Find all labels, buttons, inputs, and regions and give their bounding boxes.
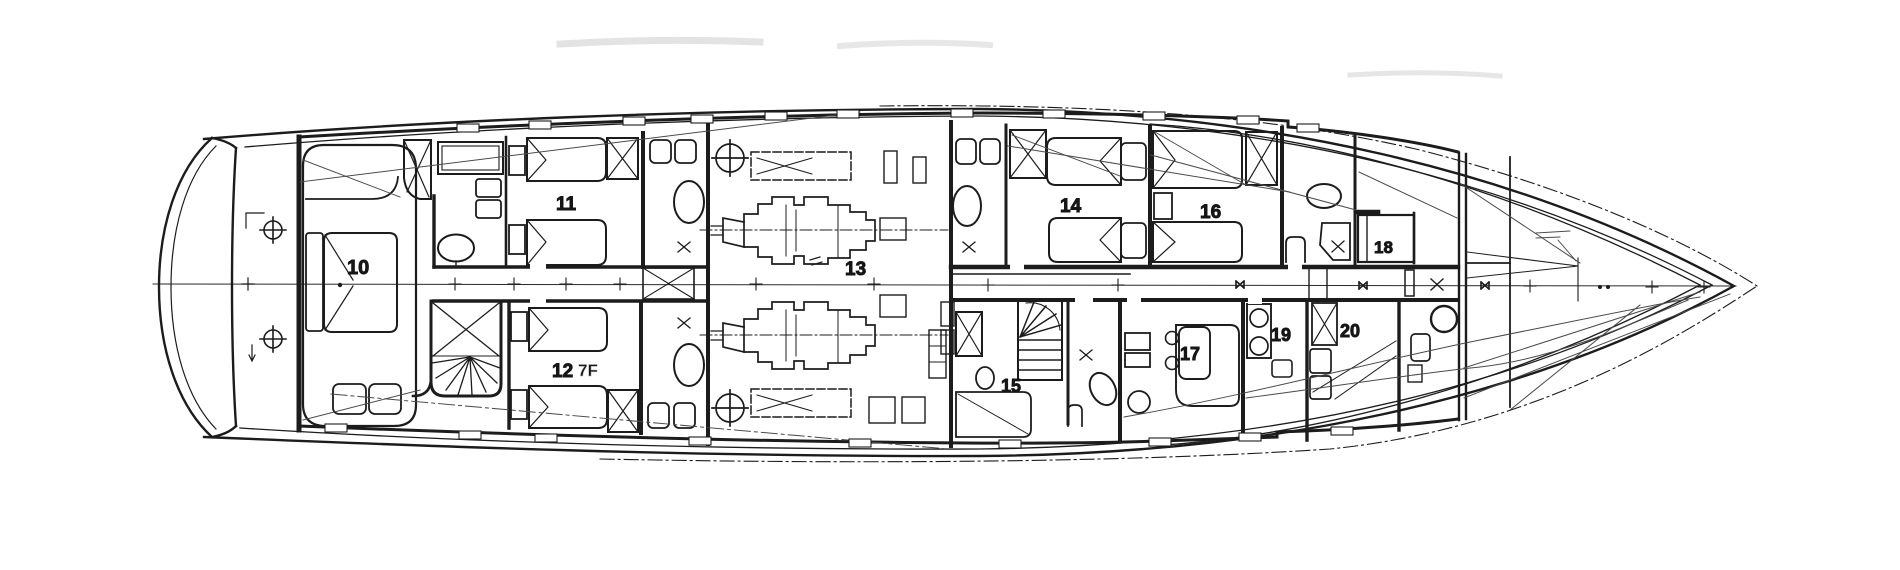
svg-text:19: 19 [1271, 325, 1291, 345]
svg-text:11: 11 [556, 194, 577, 215]
svg-text:15: 15 [1001, 376, 1021, 396]
svg-text:17: 17 [1180, 344, 1200, 364]
svg-text:16: 16 [1200, 202, 1221, 223]
svg-text:12: 12 [552, 361, 573, 382]
svg-text:20: 20 [1340, 321, 1360, 341]
svg-text:13: 13 [845, 259, 866, 280]
svg-text:10: 10 [347, 257, 369, 279]
svg-text:18: 18 [1374, 238, 1393, 257]
svg-text:7F: 7F [578, 361, 598, 380]
svg-text:14: 14 [1060, 196, 1082, 217]
